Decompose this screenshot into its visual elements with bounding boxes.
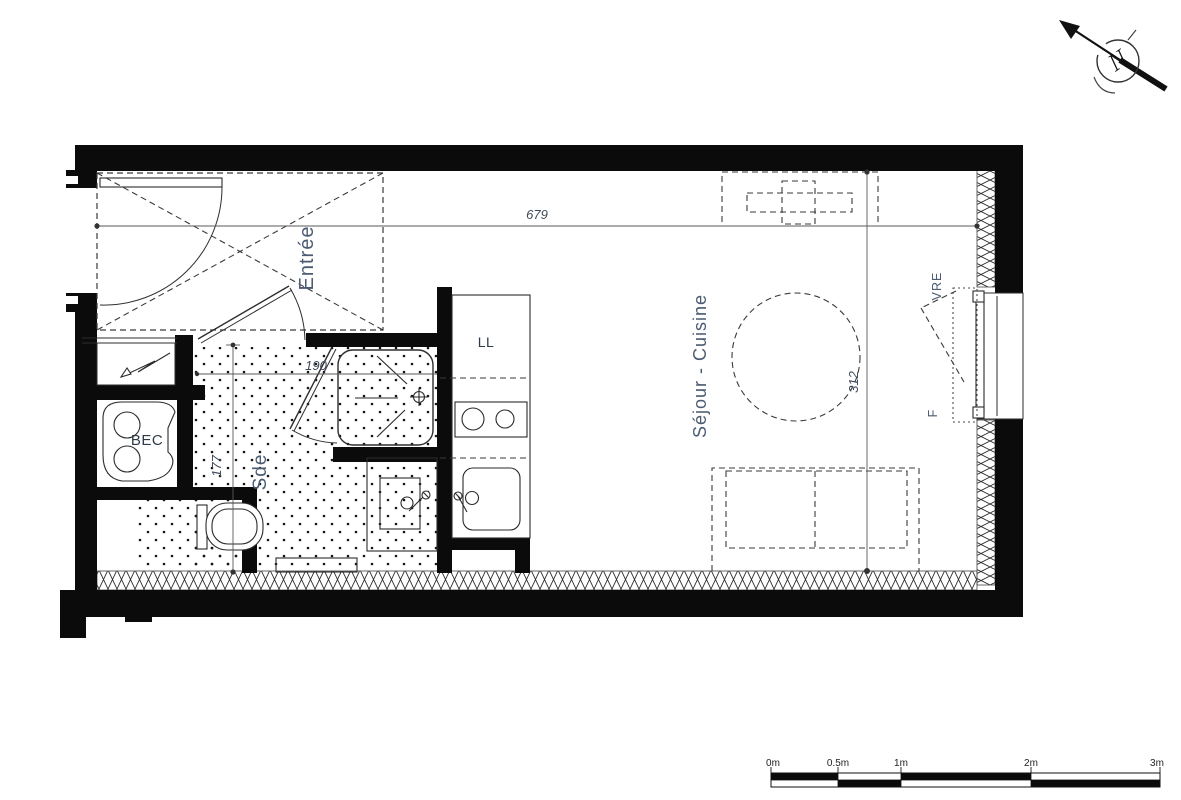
window-label: F [926, 409, 940, 418]
bec-bottom-wall [75, 487, 257, 500]
sofa-cushions [726, 471, 907, 548]
scale-1m: 1m [894, 758, 908, 769]
dim-312: 312 [846, 370, 861, 392]
roller-shutter-box [953, 288, 977, 422]
window-frame-bottom [973, 407, 984, 418]
window-frame-top [973, 291, 984, 302]
overhead-unit-bar-h [747, 193, 852, 212]
sde-top-wall [306, 333, 452, 347]
sde-label: Sde [250, 454, 271, 491]
jamb-notch-bottom [66, 296, 78, 304]
overhead-unit-bar-v [782, 181, 815, 224]
dim-679: 679 [526, 207, 548, 222]
sejour-furniture [712, 172, 919, 571]
kitchen-bottom-wall [437, 538, 530, 550]
entry-door-swing-arc [100, 187, 222, 305]
bec-right-wall [177, 335, 193, 487]
scale-3m: 3m [1150, 758, 1164, 769]
scale-2m: 2m [1024, 758, 1038, 769]
north-label: N [1103, 44, 1134, 77]
closet-diagonal-2 [97, 173, 383, 330]
sejour-cuisine-label: Séjour - Cuisine [690, 294, 710, 438]
bec-label: BEC [131, 432, 163, 449]
round-table-outline [732, 293, 860, 421]
overhead-unit-outline [722, 172, 878, 226]
sde-door-swing-arc [290, 288, 305, 340]
entry-door [100, 178, 222, 305]
kitchen-counter [452, 295, 530, 538]
right-wall-lower [995, 419, 1023, 590]
shutter-label: VRE [930, 272, 944, 301]
bottom-wall-tab [125, 617, 152, 622]
top-wall [75, 145, 1023, 171]
scale-05m: 0.5m [827, 758, 849, 769]
right-wall-upper [995, 170, 1023, 293]
kitchen-niche-right-post [515, 550, 530, 573]
floor-plan-drawing: 679 312 190 177 Entrée Séjour - Cuisine … [0, 0, 1181, 800]
washing-machine-label: LL [478, 334, 495, 350]
right-insulation-lower [977, 420, 995, 585]
floor-plan-canvas: 679 312 190 177 Entrée Séjour - Cuisine … [0, 0, 1181, 800]
north-arrow: N [1059, 20, 1166, 93]
scale-0m: 0m [766, 758, 780, 769]
shower-bottom-wall [333, 447, 452, 462]
scale-bar: 0m 0.5m 1m 2m 3m [766, 758, 1164, 787]
jamb-notch-top [66, 176, 78, 184]
toilet-seat [206, 503, 263, 550]
bottom-insulation [97, 571, 977, 590]
dim-190: 190 [305, 358, 327, 373]
dim-177: 177 [209, 454, 224, 476]
window-assembly [921, 288, 1023, 422]
bottom-wall [60, 590, 1023, 617]
entry-door-leaf [100, 178, 222, 187]
kitchen [440, 295, 530, 538]
right-insulation-upper [977, 170, 995, 287]
sde-door-leaf [198, 286, 289, 339]
bottom-left-corner-foot [60, 617, 86, 638]
entry-closet [97, 173, 383, 330]
niche-box [97, 343, 175, 385]
entry-kitchen-wall [437, 287, 452, 347]
entree-label: Entrée [296, 226, 318, 291]
left-wall [75, 312, 97, 590]
kitchen-niche-left-post [437, 550, 452, 573]
north-arrow-head-icon [1059, 20, 1080, 39]
electric-arrow-head-icon [121, 368, 131, 377]
window-swing-2 [921, 308, 964, 382]
